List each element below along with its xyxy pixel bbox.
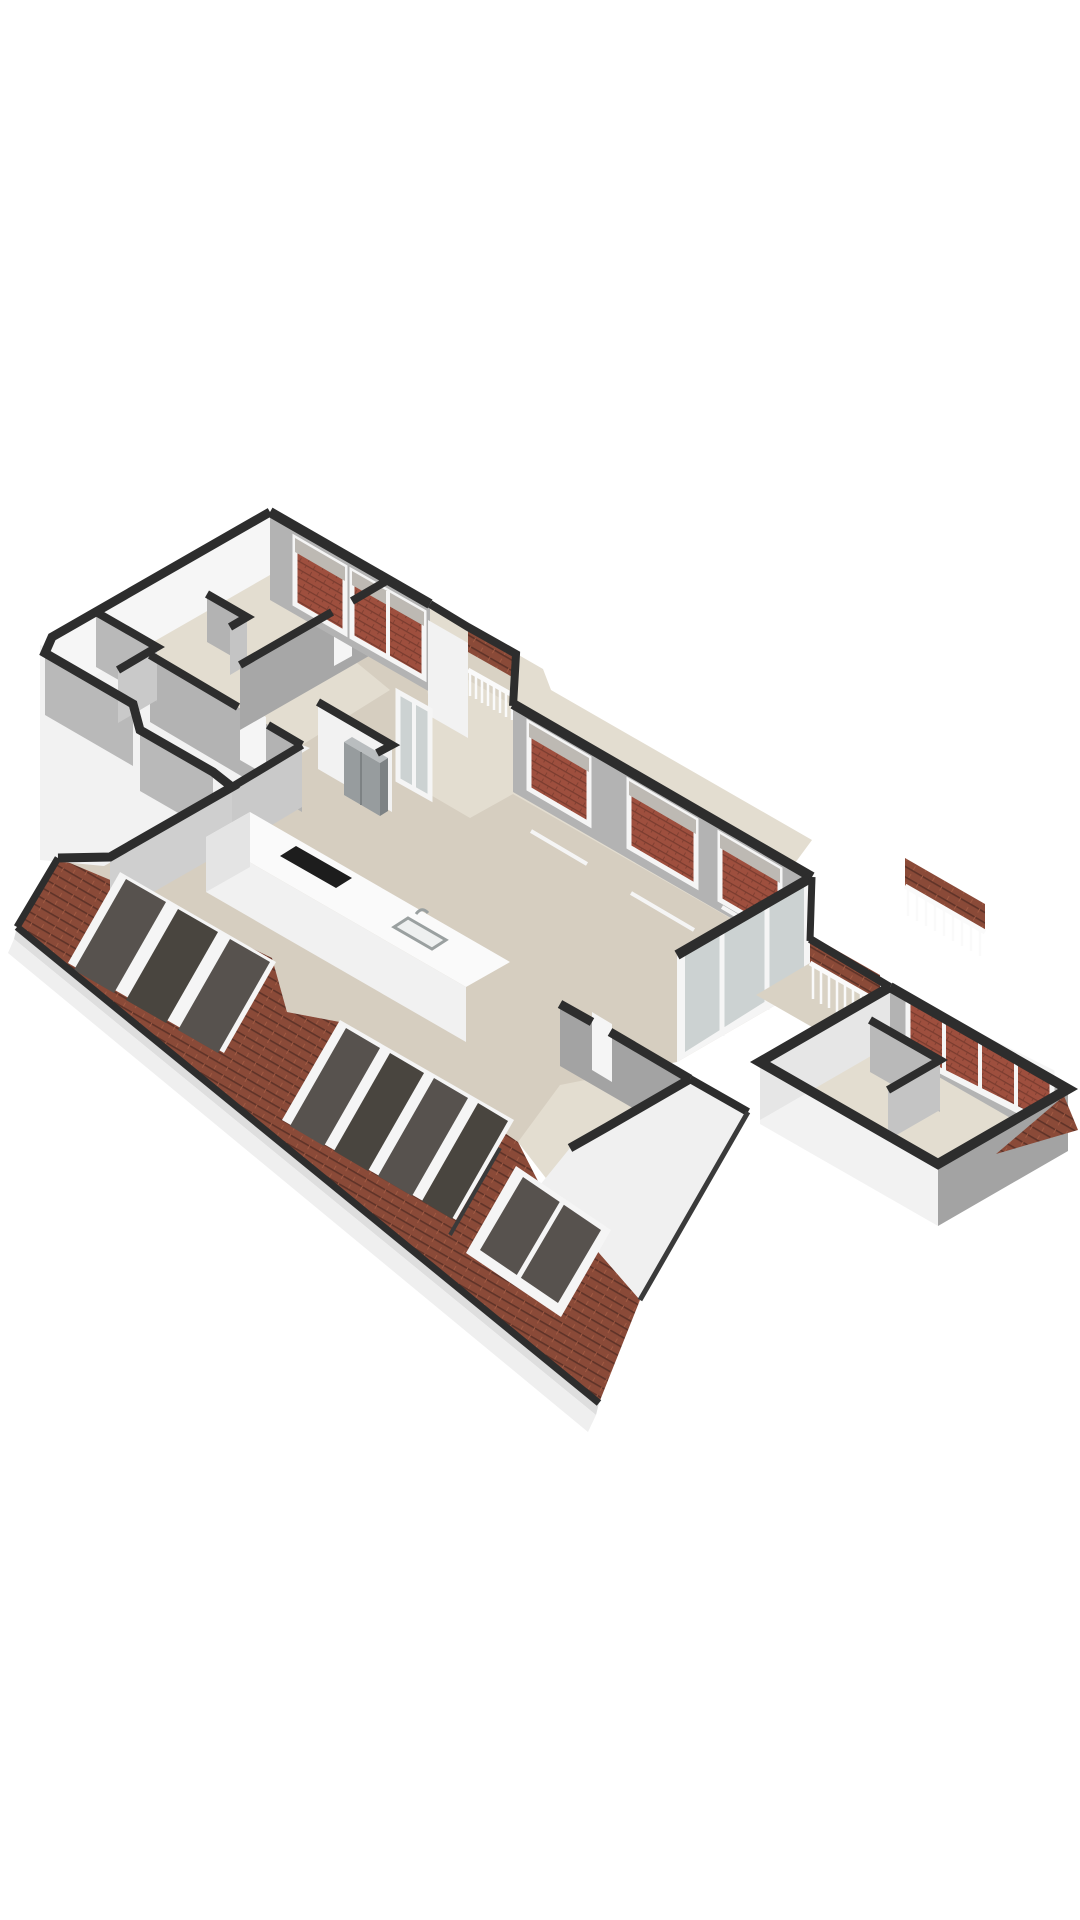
cluster-door <box>592 1012 612 1082</box>
floorplan-3d-render <box>0 0 1080 1920</box>
fridge-side <box>380 758 388 816</box>
cap-end-corner <box>810 877 812 941</box>
floorplan-canvas <box>0 0 1080 1920</box>
terrace-group <box>905 858 985 956</box>
